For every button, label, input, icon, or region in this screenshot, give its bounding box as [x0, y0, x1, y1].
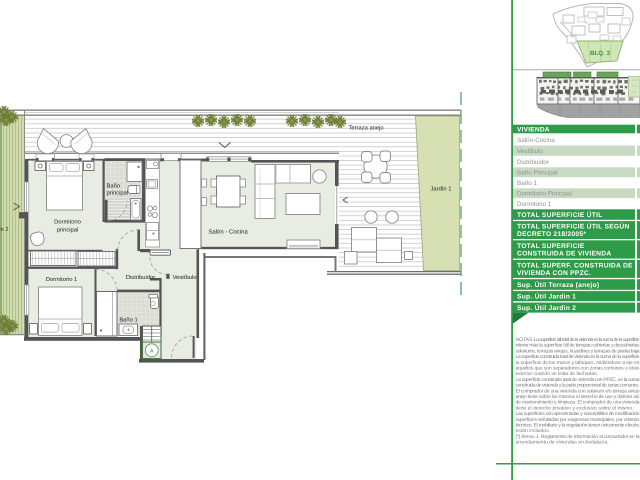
svg-text:TOTAL SUPERFICIE ÚTIL: TOTAL SUPERFICIE ÚTIL — [517, 211, 603, 219]
svg-text:arrendamiento de viviendas en: arrendamiento de viviendas en Andalucía. — [516, 440, 609, 446]
svg-text:Baño 1: Baño 1 — [119, 317, 137, 324]
svg-text:CONSTRUIDA DE VIVIENDA: CONSTRUIDA DE VIVIENDA — [517, 250, 611, 257]
svg-text:A: A — [150, 349, 154, 355]
svg-text:VIVIENDA CON PPZC.: VIVIENDA CON PPZC. — [517, 270, 591, 277]
svg-text:TOTAL SUPERFICIE ÚTIL SEGÚN: TOTAL SUPERFICIE ÚTIL SEGÚN — [517, 223, 630, 231]
svg-text:Distribuidor: Distribuidor — [126, 274, 155, 281]
svg-text:Vestíbulo: Vestíbulo — [173, 274, 197, 281]
svg-text:Baño 1: Baño 1 — [517, 180, 537, 187]
svg-text:BLQ. 3: BLQ. 3 — [590, 50, 610, 57]
svg-text:Sup. Útil Jardin 2: Sup. Útil Jardin 2 — [517, 304, 576, 312]
svg-text:Dormitorio: Dormitorio — [54, 219, 81, 226]
svg-text:TOTAL SUPERF. CONSTRUIDA DE: TOTAL SUPERF. CONSTRUIDA DE — [517, 263, 633, 270]
svg-text:principal: principal — [107, 190, 129, 197]
svg-text:principal: principal — [57, 227, 79, 234]
svg-text:Dormitorio 1: Dormitorio 1 — [46, 276, 78, 283]
svg-text:Distribuidor: Distribuidor — [517, 159, 549, 166]
svg-text:TOTAL SUPERFICIE: TOTAL SUPERFICIE — [517, 243, 585, 250]
svg-text:Sup. Útil Terraza (anejo): Sup. Útil Terraza (anejo) — [517, 281, 599, 289]
svg-text:Baño Principal: Baño Principal — [517, 170, 558, 177]
svg-text:Baño: Baño — [107, 183, 121, 190]
svg-text:Jardín 2: Jardín 2 — [0, 226, 9, 233]
svg-text:Sup. Útil Jardin 1: Sup. Útil Jardin 1 — [517, 293, 576, 301]
svg-text:Dormitorio 1: Dormitorio 1 — [517, 201, 552, 208]
svg-text:Salón - Cocina: Salón - Cocina — [208, 229, 248, 236]
svg-text:Terraza anejo: Terraza anejo — [349, 125, 384, 132]
svg-text:Salón-Cocina: Salón-Cocina — [517, 137, 555, 144]
svg-text:DECRETO 218/2005*: DECRETO 218/2005* — [517, 231, 586, 238]
svg-text:Dormitorio Principal: Dormitorio Principal — [517, 191, 572, 198]
svg-text:VIVIENDA: VIVIENDA — [517, 127, 550, 134]
svg-text:Vestíbulo: Vestíbulo — [517, 148, 543, 155]
svg-text:Jardín 1: Jardín 1 — [431, 186, 452, 193]
